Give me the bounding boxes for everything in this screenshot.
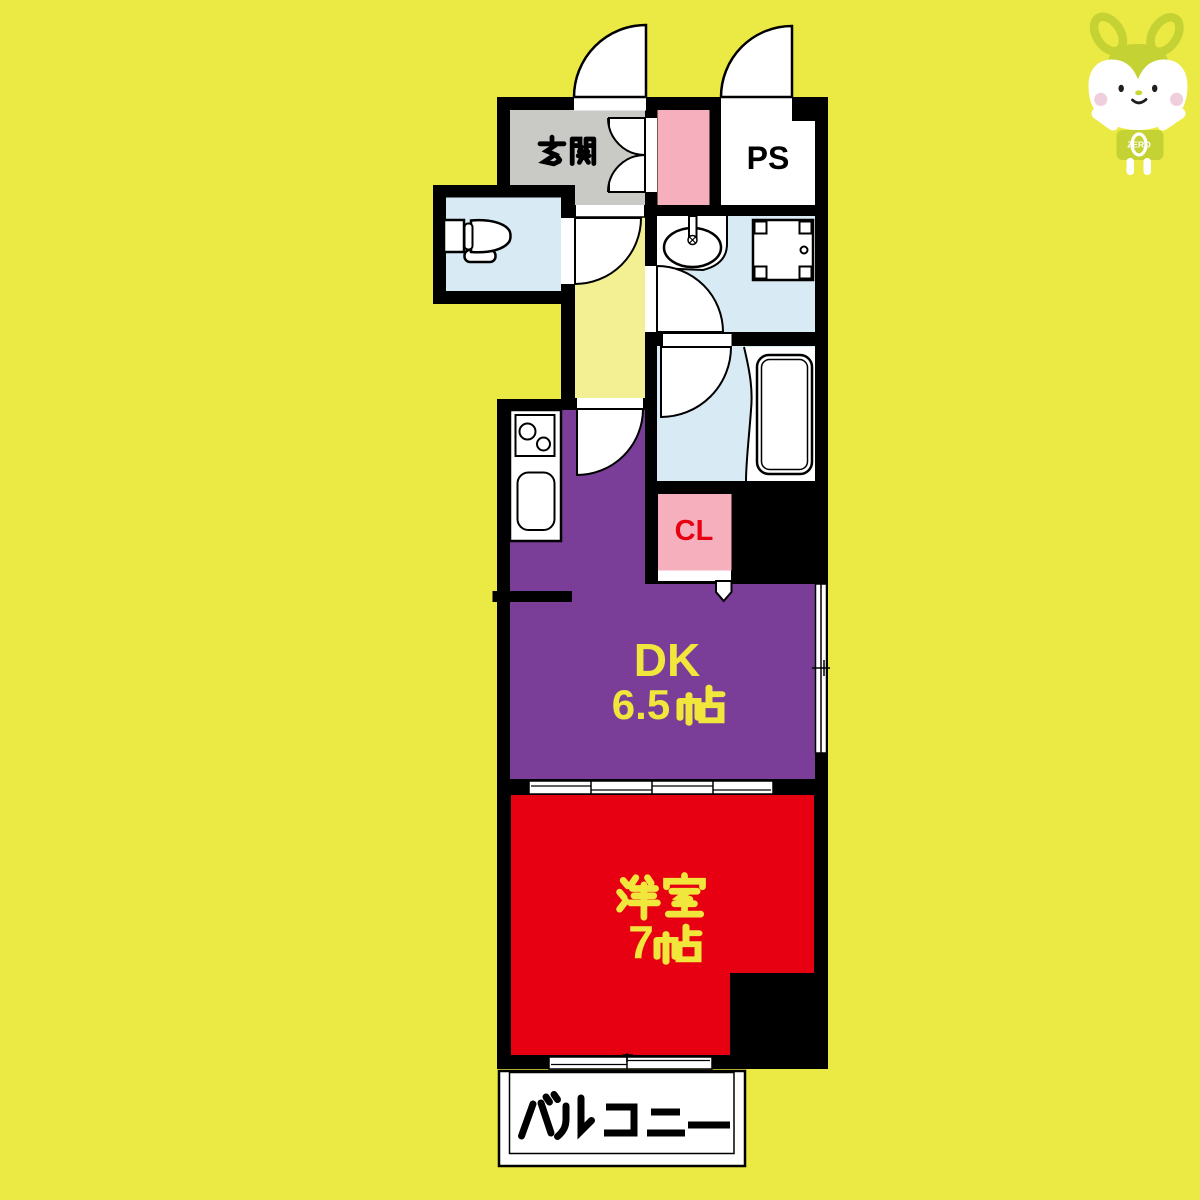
svg-text:PS: PS <box>747 140 790 176</box>
svg-text:DK: DK <box>634 634 700 686</box>
svg-text:7: 7 <box>628 916 654 968</box>
svg-text:ZERO: ZERO <box>1127 140 1151 150</box>
svg-text:6.5: 6.5 <box>612 681 670 728</box>
svg-text:CL: CL <box>675 515 714 547</box>
